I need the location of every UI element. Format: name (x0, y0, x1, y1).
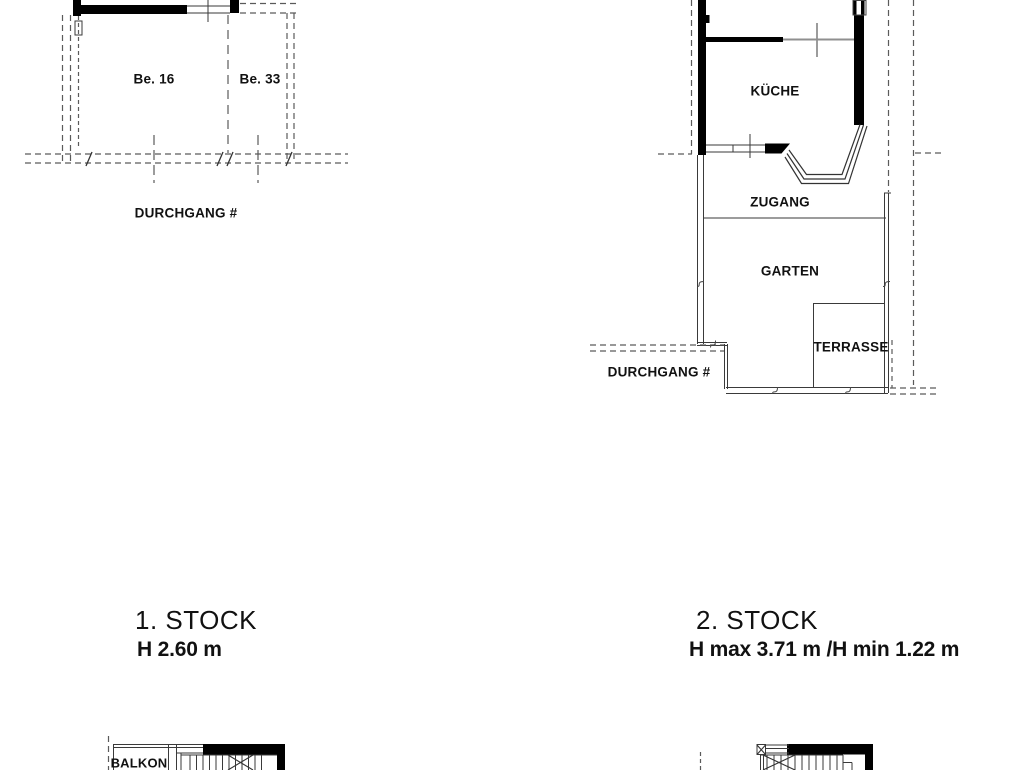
caption-second-floor-height: H max 3.71 m /H min 1.22 m (689, 638, 959, 662)
line-break-marks (697, 282, 890, 395)
bay-window-band (785, 125, 867, 184)
room-label-zugang: ZUGANG (750, 195, 810, 210)
room-label-be33: Be. 33 (240, 72, 281, 87)
room-label-terrasse: TERRASSE (813, 340, 888, 355)
room-label-garten: GARTEN (761, 264, 819, 279)
room-label-balkon: BALKON (111, 756, 168, 770)
caption-first-floor-height: H 2.60 m (137, 638, 222, 662)
room-label-be16: Be. 16 (134, 72, 175, 87)
caption-first-floor-title: 1. STOCK (135, 605, 257, 636)
caption-second-floor-title: 2. STOCK (696, 605, 818, 636)
passage-label-second-floor: DURCHGANG # (608, 365, 711, 380)
passage-label-first-floor: DURCHGANG # (135, 206, 238, 221)
room-label-kueche: KÜCHE (750, 84, 799, 99)
floor-plan-sheet: Be. 16 Be. 33 DURCHGANG # KÜCHE ZUGANG G… (0, 0, 1030, 770)
stair-run-marks (228, 745, 795, 770)
bay-sill-wall (765, 144, 790, 154)
